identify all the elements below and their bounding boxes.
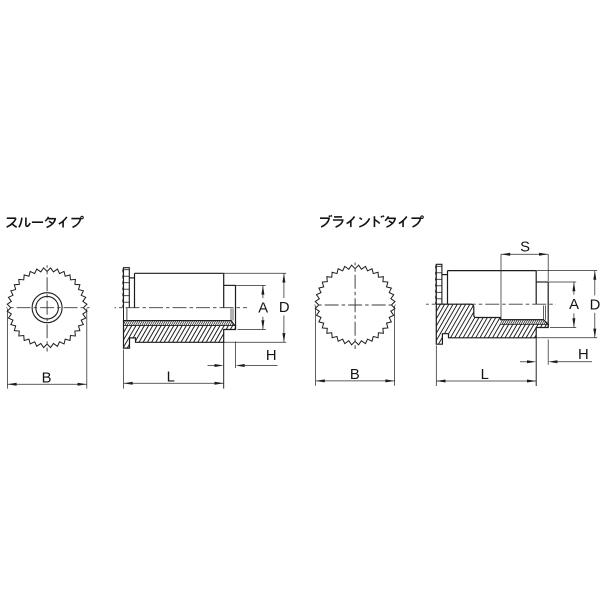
svg-text:B: B (350, 367, 360, 383)
svg-text:L: L (481, 367, 489, 383)
svg-text:S: S (520, 239, 530, 255)
svg-text:H: H (578, 347, 589, 363)
svg-text:D: D (590, 297, 600, 313)
svg-text:D: D (279, 300, 290, 316)
svg-text:A: A (258, 300, 268, 316)
svg-text:H: H (266, 348, 277, 364)
svg-text:B: B (42, 370, 52, 386)
svg-text:L: L (167, 369, 175, 385)
svg-text:A: A (569, 297, 579, 313)
